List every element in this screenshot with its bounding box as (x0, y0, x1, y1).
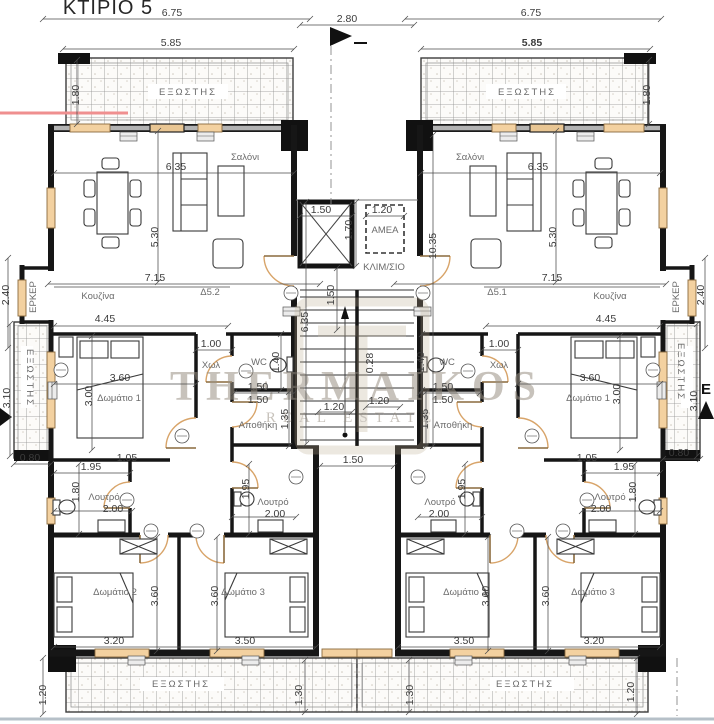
dimension-label: 5.30 (149, 227, 161, 248)
dimension-label: 1.80 (627, 482, 639, 503)
dimension-label: 1.50 (248, 381, 269, 393)
dimension-label: 1.95 (614, 461, 635, 473)
dimension-label: 1.50 (433, 381, 454, 393)
room-label: ΕΞΩΣΤΗΣ (496, 679, 554, 690)
dimension-label: 1.50 (248, 394, 269, 406)
room-label: Λουτρό (594, 492, 625, 503)
dimension-label: 7.15 (145, 272, 166, 284)
room-label: Δωμάτιο 3 (571, 587, 615, 598)
dimension-label: 0.28 (364, 353, 376, 374)
dimension-label: 1.20 (625, 682, 637, 703)
dimension-label: 2.00 (429, 508, 450, 520)
dimension-label: 1.80 (70, 85, 82, 106)
dimension-label: 3.60 (580, 372, 601, 384)
dimension-label: 3.50 (235, 635, 256, 647)
room-label: Δωμάτιο 3 (221, 587, 265, 598)
room-label: Σαλόνι (456, 152, 484, 163)
nightstand (59, 337, 73, 357)
dimension-label: 2.80 (337, 13, 358, 25)
dimension-label: 1.05 (117, 452, 138, 464)
room-label: ΕΡΚΕΡ (671, 281, 682, 313)
room-label: Δωμάτιο 2 (93, 587, 137, 598)
dimension-label: 1.30 (293, 685, 305, 706)
dimension-label: 3.50 (454, 635, 475, 647)
dimension-label: 1.40 (270, 352, 282, 373)
floor-plan-page: THERMAIKOS REAL ESTATE ΚΤΙΡΙΟ 56.752.806… (0, 0, 714, 724)
dimension-label: 6.35 (166, 161, 187, 173)
dimension-label: 1.20 (324, 401, 345, 413)
dimension-label: 4.45 (596, 313, 617, 325)
dimension-label: 5.30 (547, 227, 559, 248)
dimension-label: 6.75 (521, 7, 542, 19)
dimension-label: 4.45 (95, 313, 116, 325)
dimension-label: 1.35 (419, 409, 431, 430)
dimension-label: 3.00 (611, 384, 623, 405)
room-label: Κουζίνα (593, 291, 627, 302)
dimension-label: 1.70 (343, 220, 355, 241)
dimension-label: 1.50 (325, 285, 337, 306)
room-label: Δ5.1 (487, 287, 507, 298)
room-label: Λουτρό (88, 492, 119, 503)
dimension-label: 1.05 (577, 452, 598, 464)
room-label: Δωμάτιο 1 (97, 393, 141, 404)
dimension-label: 1.50 (343, 454, 364, 466)
dimension-label: 1.95 (81, 461, 102, 473)
dimension-label: 3.10 (688, 391, 700, 412)
dimension-label: 3.60 (149, 586, 161, 607)
dimension-label: 3.60 (209, 586, 221, 607)
watermark-title: THERMAIKOS (170, 364, 544, 410)
dimension-label: 1.40 (415, 352, 427, 373)
dimension-label: 1.80 (70, 482, 82, 503)
north-arrow-icon (330, 27, 352, 46)
bed-2 (54, 573, 133, 637)
room-label: ΕΞΩΣΤΗΣ (159, 87, 217, 98)
dimension-label: 1.00 (489, 338, 510, 350)
dimension-label: 2.40 (695, 285, 707, 306)
room-label: Χωλ (202, 360, 221, 371)
dimension-label: 5.85 (522, 37, 543, 49)
dimension-label: 6.35 (299, 312, 311, 333)
dining-table (84, 158, 141, 248)
wardrobe-3 (270, 539, 307, 554)
dimension-label: 1.20 (37, 685, 49, 706)
dimension-label: 0.80 (20, 452, 41, 464)
page-title: ΚΤΙΡΙΟ 5 (63, 0, 153, 19)
room-label: ΕΞΩΣΤΗΣ (152, 679, 210, 690)
room-label: Χωλ (490, 360, 509, 371)
room-label: Λουτρό (424, 497, 455, 508)
dimension-label: 1.50 (311, 204, 332, 216)
room-label: Αποθήκη (434, 420, 473, 431)
wardrobe-2 (120, 539, 157, 554)
dimension-label: 6.35 (528, 161, 549, 173)
dimension-label: 3.00 (83, 386, 95, 407)
room-label: ΕΞΩΣΤΗΣ (24, 349, 35, 407)
coffee-table (218, 166, 244, 216)
dimension-label: 3.20 (104, 635, 125, 647)
direction-label: E (701, 381, 711, 398)
room-label: ΕΡΚΕΡ (28, 281, 39, 313)
dimension-label: 1.20 (372, 204, 393, 216)
room-label: ΑΜΕΑ (372, 225, 400, 236)
dimension-label: 1.30 (404, 685, 416, 706)
room-label: Κουζίνα (81, 291, 115, 302)
floor-plan-canvas: THERMAIKOS REAL ESTATE ΚΤΙΡΙΟ 56.752.806… (0, 0, 714, 724)
room-label: WC (251, 357, 267, 368)
dimension-label: 2.40 (0, 285, 12, 306)
dimension-label: 1.95 (240, 479, 252, 500)
dimension-label: 5.85 (161, 37, 182, 49)
dimension-label: 2.00 (265, 508, 286, 520)
dimension-label: 1.95 (456, 479, 468, 500)
armchair (213, 239, 243, 268)
room-label: Δωμάτιο 1 (566, 393, 610, 404)
room-label: Δ5.2 (200, 287, 220, 298)
dimension-label: 1.00 (201, 338, 222, 350)
bed-3 (225, 573, 308, 637)
room-label: Αποθήκη (239, 420, 278, 431)
dimension-label: 3.10 (1, 388, 13, 409)
dimension-label: 7.15 (542, 272, 563, 284)
dimension-label: 1.20 (369, 395, 390, 407)
dimension-label: 3.60 (540, 586, 552, 607)
dimension-label: 1.80 (641, 85, 653, 106)
dimension-label: 3.20 (584, 635, 605, 647)
dimension-label: 2.00 (103, 503, 124, 515)
dimension-label: 6.75 (162, 7, 183, 19)
dimension-label: 2.00 (591, 503, 612, 515)
dimension-label: 10.35 (427, 233, 439, 259)
room-label: ΕΞΩΣΤΗΣ (675, 343, 686, 401)
dimension-label: 3.60 (110, 372, 131, 384)
dimension-label: 3.60 (480, 586, 492, 607)
dimension-label: 0.80 (669, 447, 690, 459)
room-label: WC (439, 357, 455, 368)
room-label: ΚΛΙΜ/ΣΙΟ (363, 262, 405, 273)
dimension-label: 1.50 (433, 394, 454, 406)
dimension-label: 1.35 (279, 409, 291, 430)
vanity-bath-1 (98, 520, 125, 532)
room-label: Λουτρό (257, 497, 288, 508)
room-label: Σαλόνι (231, 152, 259, 163)
room-label: ΕΞΩΣΤΗΣ (498, 87, 556, 98)
vanity-bath-2 (258, 520, 283, 532)
